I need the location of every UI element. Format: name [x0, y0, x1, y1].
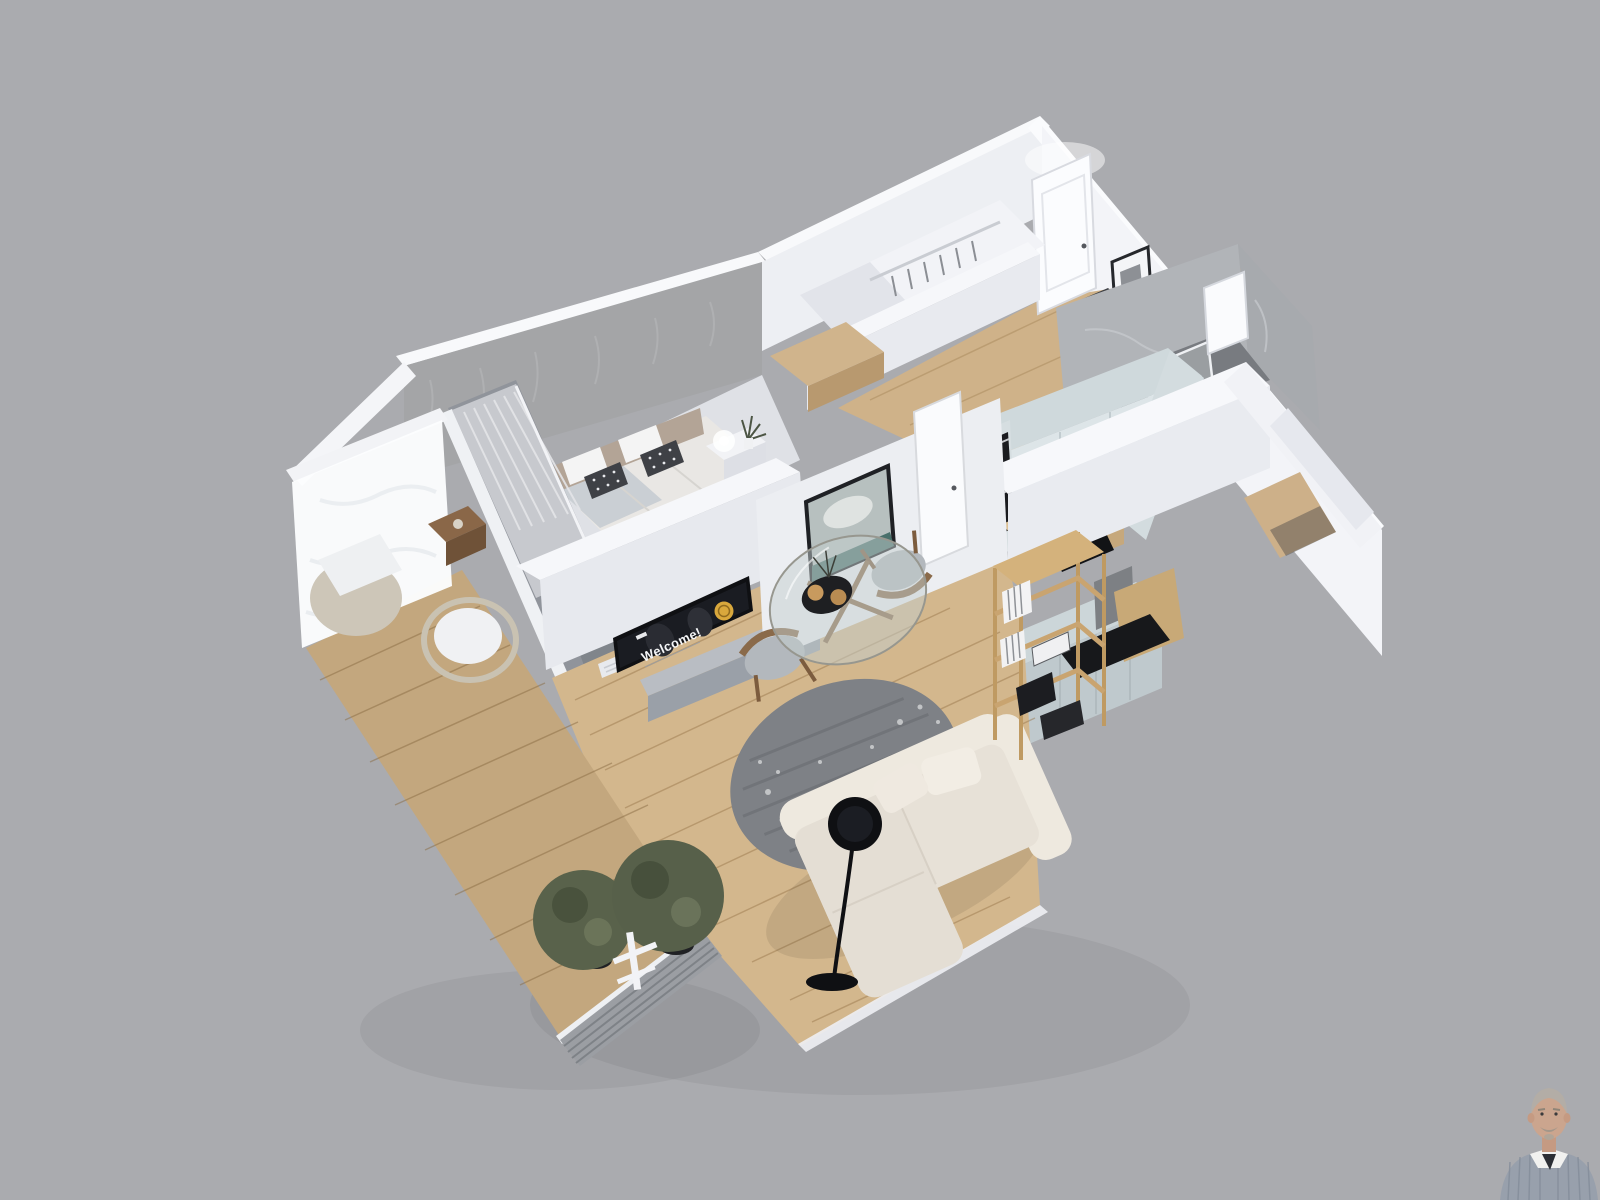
agent-goatee — [1544, 1134, 1554, 1140]
tv-emblem — [715, 602, 734, 621]
agent-ear-left — [1528, 1113, 1535, 1123]
agent-ear-right — [1564, 1113, 1571, 1123]
floorplan-render: Welcome! — [0, 0, 1600, 1200]
door-handle — [1082, 244, 1087, 249]
lamp-base — [806, 973, 858, 991]
lamp-head-inner — [837, 806, 873, 842]
plant-vase — [744, 438, 753, 449]
armchair-2-cushion — [434, 608, 502, 664]
agent-brow-left — [1538, 1109, 1545, 1110]
agent-brow-right — [1553, 1109, 1560, 1110]
interior-door — [914, 392, 968, 566]
plant-foliage-2b — [631, 861, 669, 899]
bathroom-door — [1204, 272, 1248, 354]
interior-door-handle — [952, 486, 957, 491]
plant-foliage-1c — [584, 918, 612, 946]
table-lamp — [719, 436, 729, 446]
agent-eye-right — [1554, 1112, 1557, 1115]
side-table-bowl — [453, 519, 463, 529]
plant-foliage-1b — [552, 887, 588, 923]
agent-eye-left — [1540, 1112, 1543, 1115]
plant-foliage-2c — [671, 897, 701, 927]
floorplan-svg: Welcome! — [0, 0, 1600, 1200]
